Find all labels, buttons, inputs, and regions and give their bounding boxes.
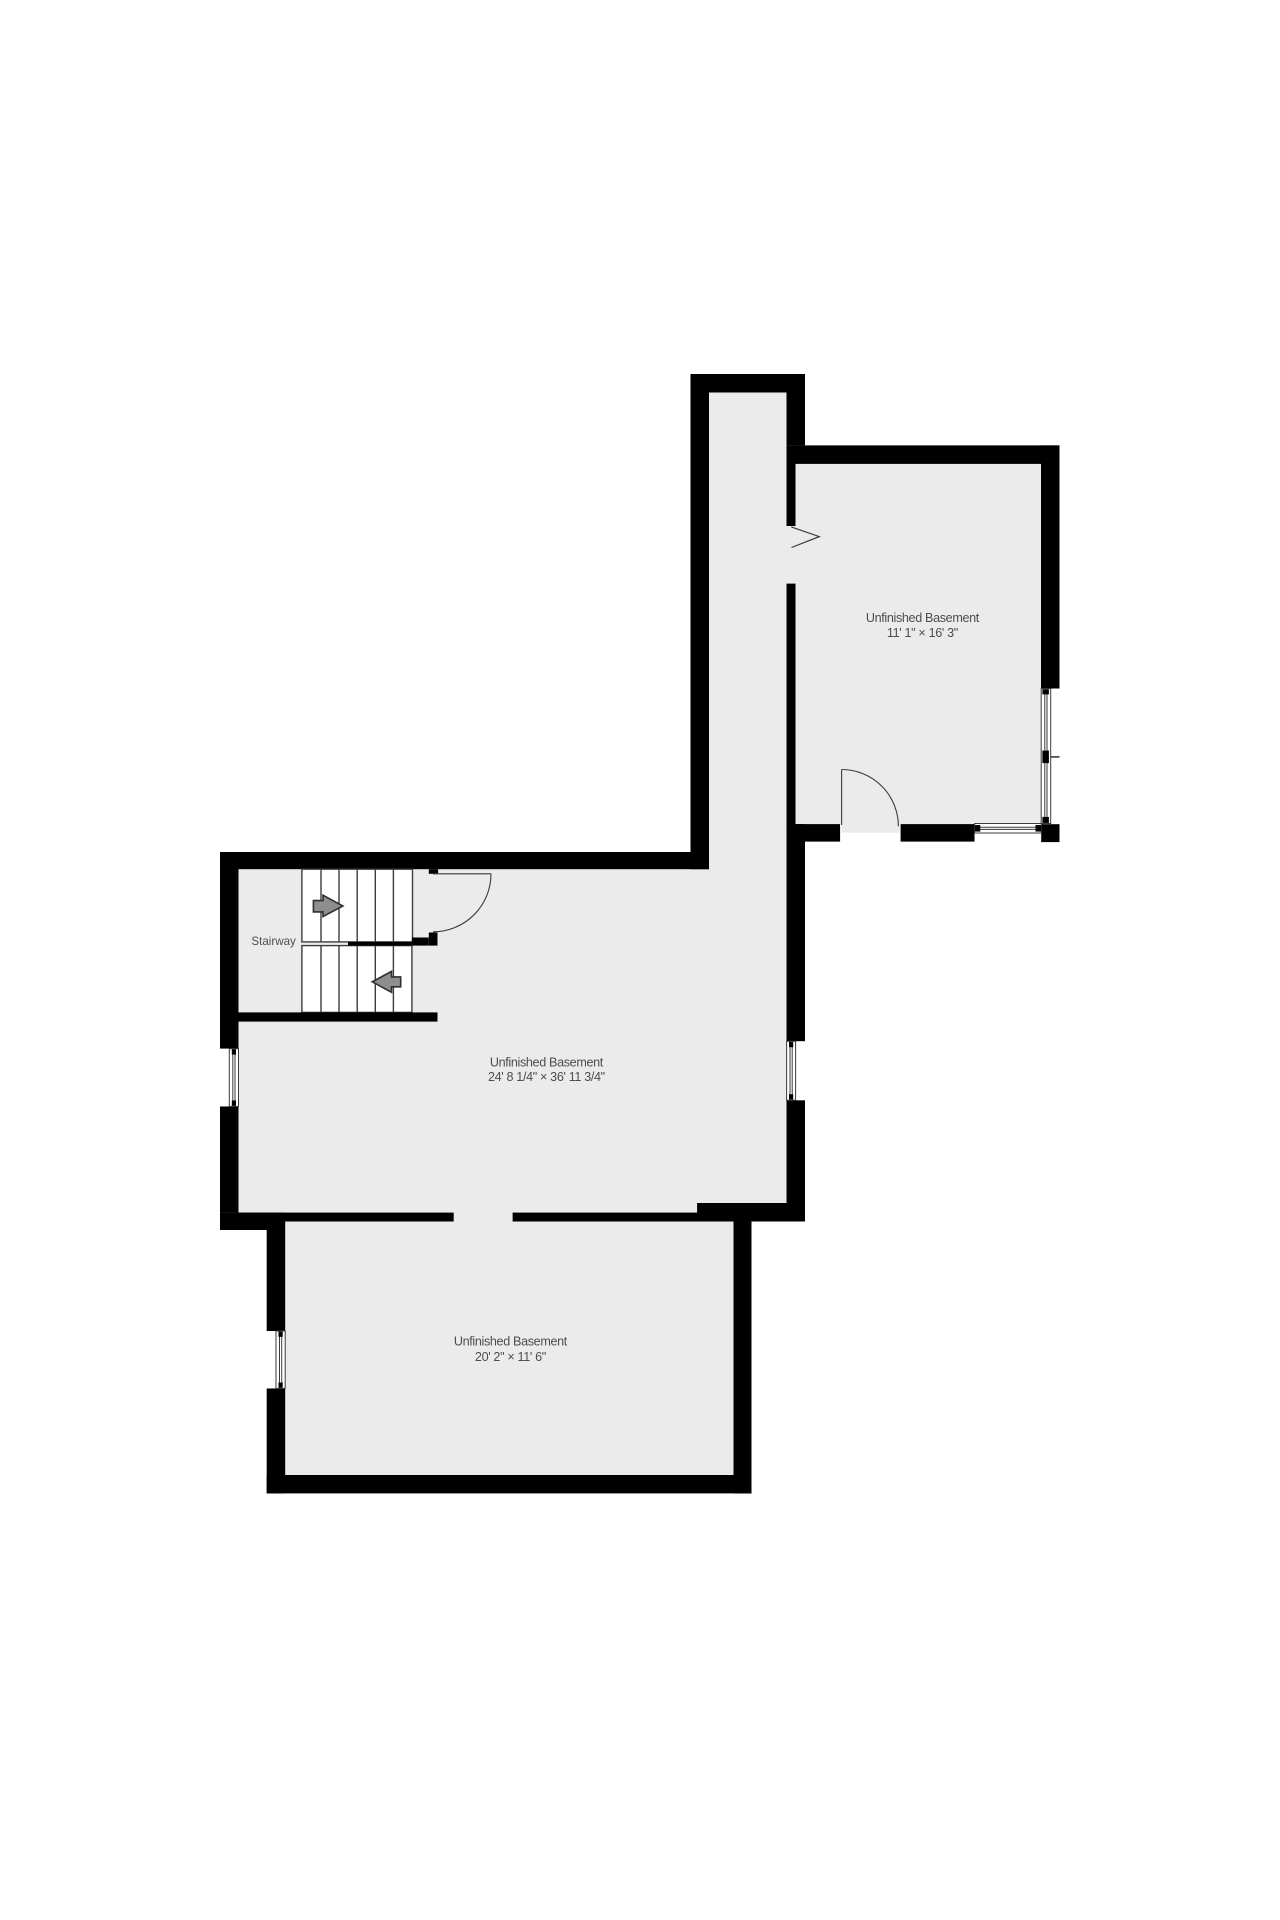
svg-text:Unfinished Basement: Unfinished Basement bbox=[866, 611, 980, 625]
svg-text:Stairway: Stairway bbox=[251, 935, 296, 948]
svg-text:Unfinished Basement: Unfinished Basement bbox=[490, 1056, 604, 1070]
svg-text:Unfinished Basement: Unfinished Basement bbox=[454, 1334, 568, 1348]
svg-text:20' 2" × 11' 6": 20' 2" × 11' 6" bbox=[475, 1350, 546, 1364]
svg-text:24' 8 1/4" × 36' 11 3/4": 24' 8 1/4" × 36' 11 3/4" bbox=[488, 1070, 605, 1084]
svg-text:11' 1" × 16' 3": 11' 1" × 16' 3" bbox=[887, 626, 958, 640]
